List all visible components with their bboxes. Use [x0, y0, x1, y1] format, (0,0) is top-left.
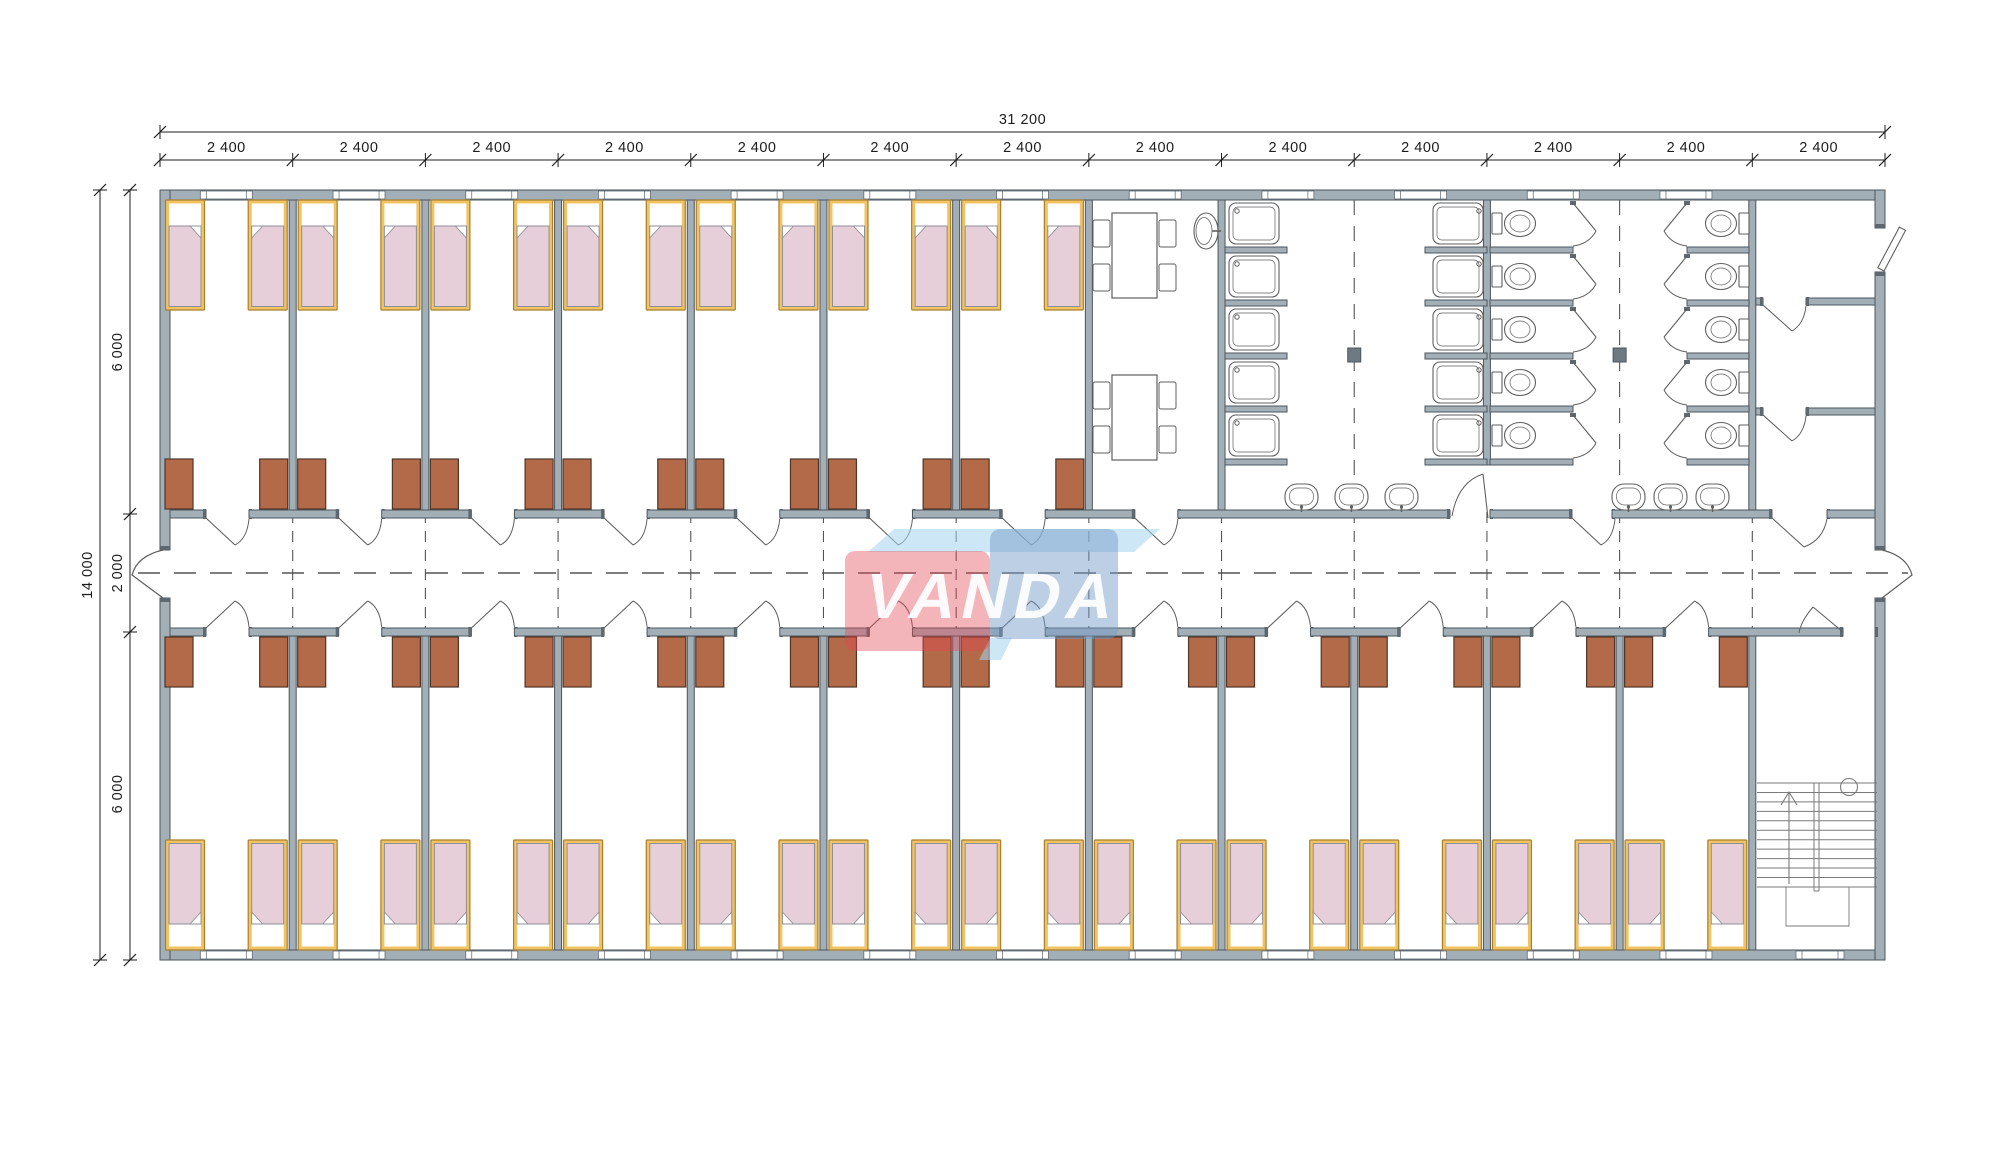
corridor-wall: [1311, 628, 1401, 636]
door-leaf: [1268, 601, 1297, 628]
corridor-wall: [1612, 510, 1772, 518]
toilet-bowl: [1505, 423, 1536, 449]
partition-wall: [1616, 636, 1623, 950]
chair: [1093, 426, 1110, 453]
bed-blanket: [169, 844, 201, 925]
partition-wall: [1351, 636, 1358, 950]
dim-label-left-segment: 6 000: [110, 333, 126, 372]
door-arc: [1792, 416, 1806, 441]
partition-wall: [1806, 298, 1875, 305]
wardrobe: [1189, 637, 1217, 687]
bed-blanket: [1711, 844, 1743, 925]
shower-tray: [1433, 362, 1483, 403]
door-leaf: [1573, 309, 1596, 337]
wardrobe: [1227, 637, 1255, 687]
wardrobe: [430, 459, 458, 509]
door-leaf: [1763, 415, 1792, 441]
shower-tray: [1433, 256, 1483, 297]
door-leaf: [1664, 309, 1687, 337]
wardrobe: [165, 459, 193, 509]
bed-blanket: [782, 844, 814, 925]
wardrobe: [563, 459, 591, 509]
wc-stall-wall: [1490, 300, 1573, 306]
toilet-tank: [1492, 372, 1502, 393]
wardrobe: [260, 459, 288, 509]
shower-stub-wall: [1425, 300, 1487, 306]
basin-tap-dot: [1350, 505, 1353, 508]
window: [1262, 951, 1314, 959]
wall-cap: [203, 627, 206, 637]
window: [731, 951, 783, 959]
wall-cap: [160, 598, 170, 602]
door-leaf: [1573, 362, 1596, 390]
window: [1527, 951, 1579, 959]
floor-plan-canvas: 31 2002 4002 4002 4002 4002 4002 4002 40…: [0, 0, 2000, 1164]
door-leaf: [206, 518, 235, 545]
dim-label-top-segment: 2 400: [1003, 140, 1042, 156]
bed-blanket: [915, 844, 947, 925]
wall-cap: [1769, 509, 1772, 519]
bed-blanket: [915, 226, 947, 307]
bed-blanket: [650, 226, 682, 307]
wall-cap: [1875, 224, 1885, 228]
bed-blanket: [700, 844, 732, 925]
wall-cap: [1875, 546, 1885, 550]
toilet-bowl: [1505, 370, 1536, 396]
bed-blanket: [1098, 844, 1130, 925]
bed-blanket: [302, 844, 334, 925]
window: [1660, 951, 1712, 959]
door-arc: [1429, 601, 1443, 627]
door-leaf: [339, 518, 368, 545]
toilet-bowl: [1706, 264, 1737, 290]
exterior-door-leaf: [1878, 227, 1906, 271]
wall-cap: [1806, 297, 1809, 306]
wardrobe: [165, 637, 193, 687]
canteen-table: [1112, 213, 1157, 298]
wardrobe: [1492, 637, 1520, 687]
door-leaf: [1772, 518, 1804, 547]
wardrobe: [430, 637, 458, 687]
corridor-wall: [1045, 510, 1135, 518]
bed-blanket: [1231, 844, 1263, 925]
wall-cap: [1875, 272, 1885, 276]
shower-stub-wall: [1225, 247, 1287, 253]
dim-label-top-segment: 2 400: [1667, 140, 1706, 156]
partition-wall: [422, 636, 429, 950]
dim-label-top-segment: 2 400: [472, 140, 511, 156]
door-leaf: [471, 518, 500, 545]
toilet-bowl: [1505, 264, 1536, 290]
corridor-wall: [1827, 510, 1875, 518]
corridor-wall: [647, 510, 737, 518]
bed-blanket: [650, 844, 682, 925]
window: [864, 951, 916, 959]
door-leaf: [737, 601, 766, 628]
dim-label-top-segment: 2 400: [870, 140, 909, 156]
bed-blanket: [965, 844, 997, 925]
window: [864, 191, 916, 199]
toilet-tank: [1739, 213, 1749, 234]
basin-tap-dot: [1711, 505, 1714, 508]
door-arc: [1792, 306, 1806, 331]
bed-blanket: [302, 226, 334, 307]
toilet-tank: [1739, 372, 1749, 393]
wall-cap: [1806, 407, 1809, 416]
partition-wall: [820, 636, 827, 950]
door-arc: [368, 519, 382, 545]
basin-tap-dot: [1627, 505, 1630, 508]
wc-stall-wall: [1687, 247, 1749, 253]
wall-cap: [1760, 407, 1763, 416]
wardrobe: [923, 459, 951, 509]
corridor-wall: [382, 510, 472, 518]
toilet-bowl: [1706, 211, 1737, 237]
bed-blanket: [1629, 844, 1661, 925]
wardrobe: [1321, 637, 1349, 687]
partition-wall: [422, 200, 429, 510]
window: [333, 951, 385, 959]
wall-cap: [203, 509, 206, 519]
bed-blanket: [1496, 844, 1528, 925]
door-leaf: [1483, 474, 1488, 518]
bed-blanket: [1181, 844, 1213, 925]
door-leaf: [1400, 601, 1429, 628]
wall-cap: [1132, 509, 1135, 519]
wardrobe: [696, 459, 724, 509]
dim-label-top-segment: 2 400: [1136, 140, 1175, 156]
wardrobe: [1056, 637, 1084, 687]
bed-blanket: [169, 226, 201, 307]
dim-label-top-segment: 2 400: [1268, 140, 1307, 156]
wall-cap: [1875, 598, 1885, 602]
partition-wall: [289, 636, 296, 950]
wc-stall-wall: [1490, 406, 1573, 412]
window: [1796, 951, 1844, 959]
corridor-wall: [1709, 628, 1843, 636]
dim-label-left-total: 14 000: [80, 551, 96, 598]
wall-cap: [468, 627, 471, 637]
partition-wall: [555, 636, 562, 950]
partition-wall: [687, 636, 694, 950]
door-leaf: [1573, 415, 1596, 443]
toilet-bowl: [1706, 317, 1737, 343]
bed-blanket: [1579, 844, 1611, 925]
dim-label-top-segment: 2 400: [1799, 140, 1838, 156]
bed-blanket: [782, 226, 814, 307]
door-arc: [1664, 443, 1687, 458]
wall-cap: [336, 627, 339, 637]
dim-label-top-segment: 2 400: [605, 140, 644, 156]
door-leaf: [339, 601, 368, 628]
corridor-wall: [1178, 628, 1268, 636]
window: [1527, 191, 1579, 199]
window: [731, 191, 783, 199]
door-leaf: [1664, 203, 1687, 231]
corridor-wall: [912, 510, 1002, 518]
window: [1129, 191, 1181, 199]
wall-cap: [1663, 627, 1666, 637]
bed-blanket: [252, 844, 284, 925]
window: [598, 191, 650, 199]
door-arc: [1452, 474, 1483, 516]
bed-blanket: [567, 226, 599, 307]
wall-cap: [1132, 627, 1135, 637]
window: [997, 951, 1049, 959]
window: [466, 951, 518, 959]
bed-blanket: [517, 226, 549, 307]
door-leaf: [1533, 601, 1562, 628]
dim-label-left-segment: 6 000: [110, 775, 126, 814]
window: [1262, 191, 1314, 199]
shower-tray: [1433, 415, 1483, 456]
door-arc: [1573, 390, 1596, 405]
partition-wall: [1218, 200, 1225, 510]
door-leaf: [1763, 305, 1792, 331]
window: [200, 191, 252, 199]
door-arc: [633, 519, 647, 545]
wardrobe: [1454, 637, 1482, 687]
bed-blanket: [517, 844, 549, 925]
watermark-text: VANDA: [859, 560, 1127, 632]
wall-cap: [1569, 509, 1572, 519]
wc-stall-wall: [1687, 353, 1749, 359]
wc-stall-wall: [1490, 459, 1573, 465]
dim-label-top-segment: 2 400: [1534, 140, 1573, 156]
toilet-bowl: [1706, 370, 1737, 396]
floor-plan-page: 31 2002 4002 4002 4002 4002 4002 4002 40…: [0, 0, 2000, 1164]
shower-tray: [1433, 309, 1483, 350]
toilet-bowl: [1505, 211, 1536, 237]
wall-cap: [336, 509, 339, 519]
corridor-wall: [514, 510, 604, 518]
wardrobe: [260, 637, 288, 687]
window: [1660, 191, 1712, 199]
door-leaf: [604, 518, 633, 545]
wall-cap: [1447, 509, 1450, 519]
door-arc: [1601, 519, 1615, 545]
corridor-wall: [249, 628, 339, 636]
partition-wall: [1483, 636, 1490, 950]
window: [200, 951, 252, 959]
exterior-wall-right: [1875, 598, 1885, 960]
window: [333, 191, 385, 199]
structural-column: [1348, 348, 1361, 362]
door-leaf: [1573, 256, 1596, 284]
door-arc: [500, 601, 514, 627]
bed-blanket: [252, 226, 284, 307]
door-leaf: [1664, 415, 1687, 443]
corridor-wall: [170, 510, 206, 518]
bed-blanket: [434, 844, 466, 925]
bed-blanket: [1363, 844, 1395, 925]
canteen-table: [1112, 375, 1157, 460]
partition-wall: [820, 200, 827, 510]
door-leaf: [471, 601, 500, 628]
bed-blanket: [700, 226, 732, 307]
toilet-tank: [1739, 266, 1749, 287]
bed-blanket: [384, 226, 416, 307]
wall-cap: [1875, 627, 1878, 637]
door-leaf: [1135, 601, 1164, 628]
chair: [1159, 426, 1176, 453]
wardrobe: [298, 459, 326, 509]
shower-stub-wall: [1225, 300, 1287, 306]
chair: [1159, 264, 1176, 291]
toilet-bowl: [1706, 423, 1737, 449]
toilet-tank: [1492, 266, 1502, 287]
shower-stub-wall: [1425, 247, 1487, 253]
toilet-tank: [1739, 319, 1749, 340]
basin-tap-dot: [1300, 505, 1303, 508]
door-leaf: [1664, 362, 1687, 390]
dim-label-top-segment: 2 400: [738, 140, 777, 156]
corridor-wall: [170, 628, 206, 636]
shower-stub-wall: [1225, 353, 1287, 359]
door-arc: [368, 601, 382, 627]
wardrobe: [392, 459, 420, 509]
wardrobe: [658, 637, 686, 687]
wc-stall-wall: [1687, 300, 1749, 306]
partition-wall: [1085, 636, 1092, 950]
door-arc: [766, 519, 780, 545]
door-leaf: [1573, 203, 1596, 231]
wardrobe: [1094, 637, 1122, 687]
door-arc: [1164, 601, 1178, 627]
door-leaf: [1572, 518, 1601, 545]
wc-stall-wall: [1490, 247, 1573, 253]
bed-blanket: [1048, 226, 1080, 307]
door-leaf: [1664, 256, 1687, 284]
chair: [1093, 382, 1110, 409]
bed-blanket: [384, 844, 416, 925]
wardrobe: [658, 459, 686, 509]
dim-label-top-segment: 2 400: [207, 140, 246, 156]
structural-column: [1613, 348, 1626, 362]
wc-stall-wall: [1687, 459, 1749, 465]
dim-label-top-segment: 2 400: [1401, 140, 1440, 156]
dim-label-top-total: 31 200: [999, 112, 1046, 128]
shower-stub-wall: [1225, 406, 1287, 412]
partition-wall: [1085, 200, 1092, 510]
window: [466, 191, 518, 199]
wc-stall-wall: [1687, 406, 1749, 412]
toilet-tank: [1492, 319, 1502, 340]
door-arc: [1664, 390, 1687, 405]
wall-cap: [1530, 627, 1533, 637]
door-arc: [1664, 337, 1687, 352]
door-arc: [1297, 601, 1311, 627]
wardrobe: [525, 459, 553, 509]
exterior-door: [1878, 227, 1906, 271]
exterior-wall-right: [1875, 272, 1885, 550]
wall-cap: [734, 509, 737, 519]
dim-label-left-segment: 2 000: [110, 554, 126, 593]
window: [1395, 951, 1447, 959]
toilet-tank: [1492, 213, 1502, 234]
door-arc: [1573, 231, 1596, 246]
wall-cap: [999, 509, 1002, 519]
door-arc: [633, 601, 647, 627]
door-arc: [1695, 601, 1709, 627]
window: [598, 951, 650, 959]
shower-tray: [1433, 203, 1483, 244]
wardrobe: [828, 459, 856, 509]
shower-stub-wall: [1225, 459, 1287, 465]
corridor-wall: [249, 510, 339, 518]
exterior-double-door: [132, 550, 163, 598]
chair: [1093, 220, 1110, 247]
wardrobe: [961, 459, 989, 509]
door-leaf: [604, 601, 633, 628]
wardrobe: [696, 637, 724, 687]
corridor-wall: [1178, 510, 1450, 518]
partition-wall: [555, 200, 562, 510]
bed-blanket: [832, 844, 864, 925]
partition-wall: [953, 636, 960, 950]
wall-cap: [866, 509, 869, 519]
stair-landing: [1786, 887, 1849, 926]
corridor-wall: [514, 628, 604, 636]
bed-blanket: [965, 226, 997, 307]
basin-tap-dot: [1669, 505, 1672, 508]
toilet-bowl: [1505, 317, 1536, 343]
wall-cap: [1265, 627, 1268, 637]
corridor-wall: [1576, 628, 1666, 636]
bed-blanket: [567, 844, 599, 925]
corridor-wall: [647, 628, 737, 636]
toilet-tank: [1739, 425, 1749, 446]
door-arc: [235, 601, 249, 627]
door-leaf: [737, 518, 766, 545]
wardrobe: [790, 637, 818, 687]
wardrobe: [790, 459, 818, 509]
corridor-wall: [780, 510, 870, 518]
chair: [1093, 264, 1110, 291]
partition-wall: [289, 200, 296, 510]
wall-cap: [601, 627, 604, 637]
wardrobe: [1625, 637, 1653, 687]
partition-wall: [1218, 636, 1225, 950]
bed-blanket: [434, 226, 466, 307]
bed-blanket: [1048, 844, 1080, 925]
wardrobe: [298, 637, 326, 687]
bed-blanket: [1313, 844, 1345, 925]
shower-stub-wall: [1425, 353, 1487, 359]
door-leaf: [206, 601, 235, 628]
window: [997, 191, 1049, 199]
partition-wall: [1483, 200, 1490, 465]
dim-label-top-segment: 2 400: [340, 140, 379, 156]
corridor-wall: [382, 628, 472, 636]
wall-cap: [1760, 297, 1763, 306]
exterior-double-door: [1882, 550, 1912, 598]
partition-wall: [1749, 636, 1756, 950]
partition-wall: [953, 200, 960, 510]
door-arc: [235, 519, 249, 545]
door-arc: [1164, 519, 1178, 545]
wc-stall-wall: [1490, 353, 1573, 359]
door-arc: [1573, 337, 1596, 352]
door-leaf: [1666, 601, 1695, 628]
window: [1129, 951, 1181, 959]
corridor-wall: [1490, 510, 1572, 518]
shower-stub-wall: [1425, 406, 1487, 412]
wardrobe: [1587, 637, 1615, 687]
door-arc: [1664, 284, 1687, 299]
wall-cap: [1397, 627, 1400, 637]
door-arc: [766, 601, 780, 627]
